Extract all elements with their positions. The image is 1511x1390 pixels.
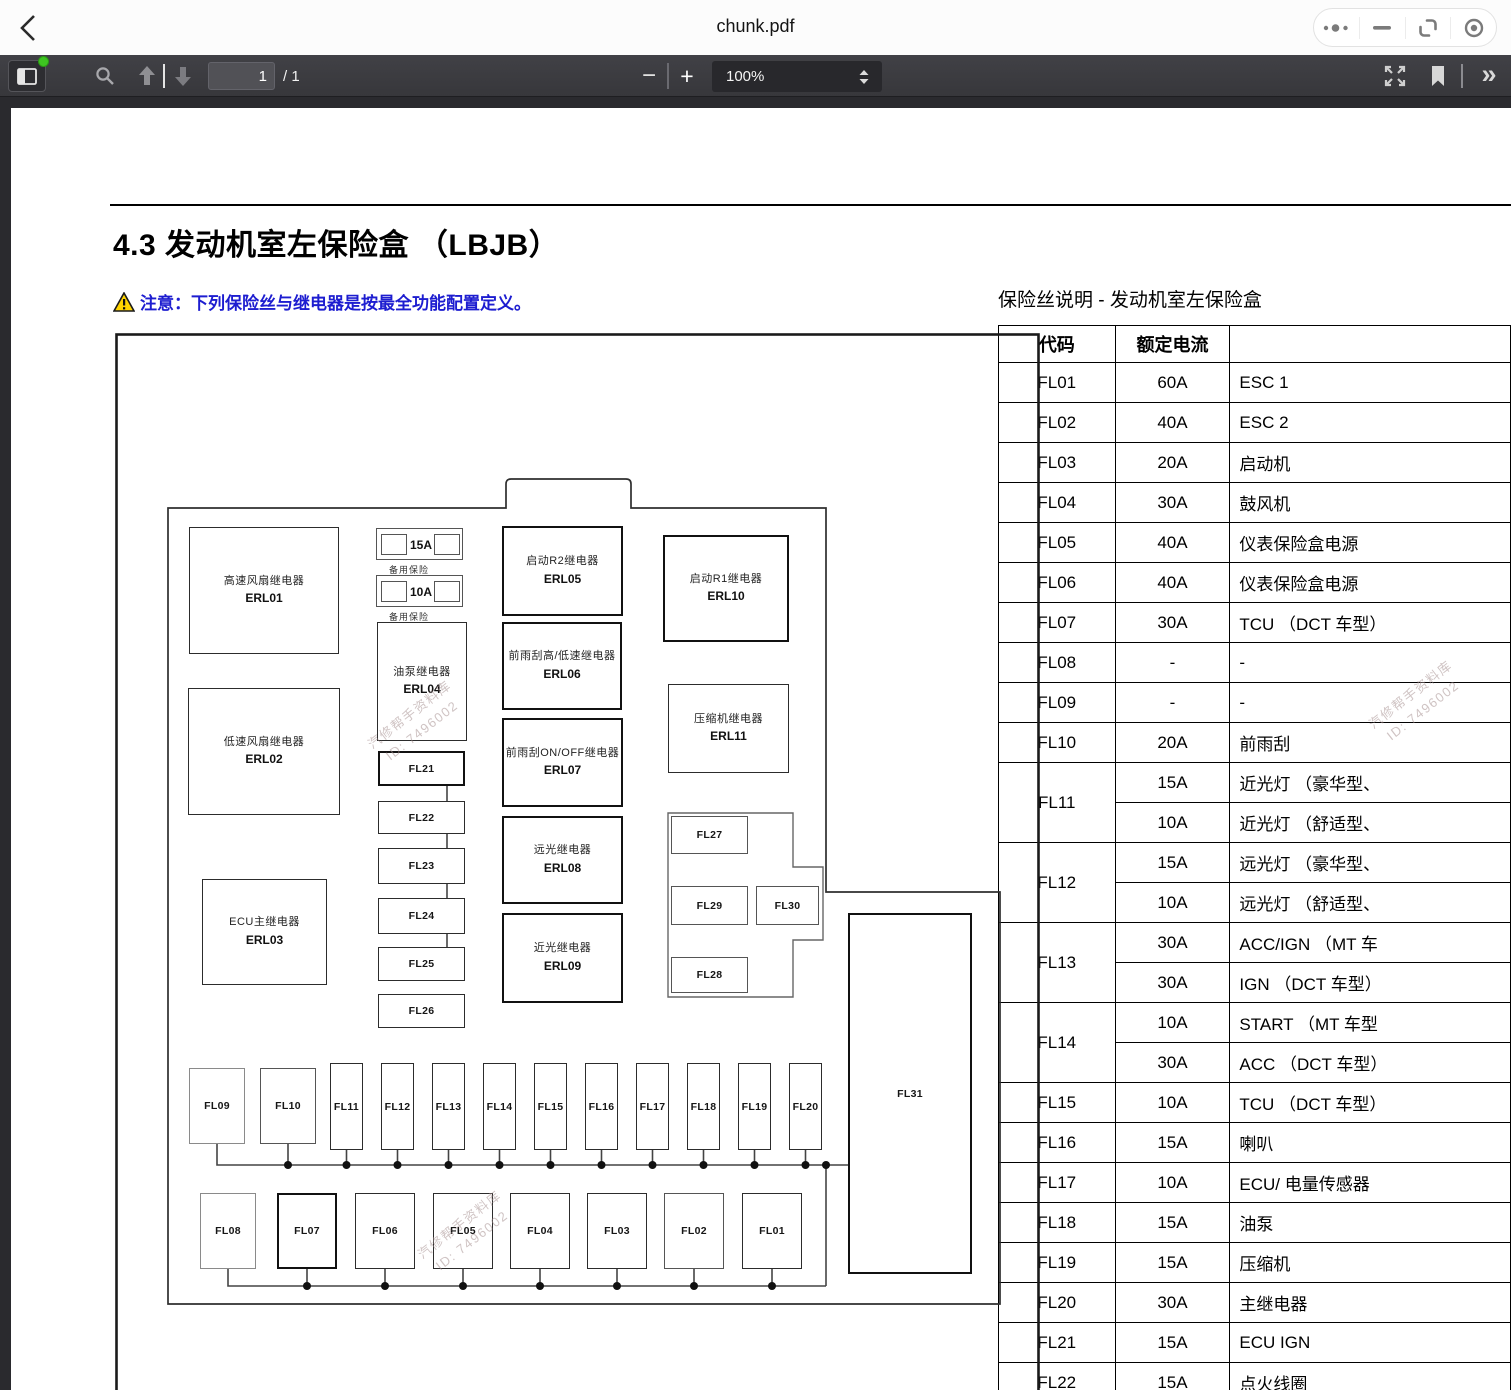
fuse-desc-cell: ACC/IGN （MT 车: [1230, 923, 1511, 963]
app-bar: chunk.pdf: [0, 0, 1511, 55]
fuse-desc-cell: 近光灯 （豪华型、: [1230, 763, 1511, 803]
relay-box-erl07: 前雨刮ON/OFF继电器ERL07: [502, 718, 623, 807]
fuse-amp-cell: 15A: [1115, 843, 1230, 883]
relay-name-label: 高速风扇继电器: [224, 574, 305, 590]
fuse-box-fl18: FL18: [687, 1063, 720, 1150]
header-desc: [1230, 326, 1511, 363]
fuse-box-fl08: FL08: [200, 1193, 256, 1269]
spare-caption: 备用保险: [389, 610, 429, 623]
fuse-amp-cell: 30A: [1115, 1043, 1230, 1083]
fuse-desc-cell: 仪表保险盒电源: [1230, 563, 1511, 603]
fuse-amp-cell: 15A: [1115, 1323, 1230, 1363]
fuse-label: FL07: [294, 1225, 320, 1237]
next-page-button[interactable]: [170, 63, 196, 89]
fuse-desc-cell: TCU （DCT 车型）: [1230, 603, 1511, 643]
fuse-desc-cell: IGN （DCT 车型）: [1230, 963, 1511, 1003]
toolbar-separator: [1461, 64, 1463, 88]
fuse-box-fl12: FL12: [381, 1063, 414, 1150]
fuse-desc-cell: ESC 1: [1230, 363, 1511, 403]
fuse-label: FL09: [204, 1100, 230, 1112]
fuse-amp-cell: 10A: [1115, 1003, 1230, 1043]
fuse-amp-cell: 10A: [1115, 883, 1230, 923]
fuse-box-fl07: FL07: [277, 1193, 337, 1269]
fuse-box-fl26: FL26: [378, 994, 465, 1028]
relay-name-label: 前雨刮高/低速继电器: [508, 649, 615, 665]
fuse-label: FL03: [604, 1225, 630, 1237]
relay-box-erl10: 启动R1继电器ERL10: [663, 535, 789, 642]
pdf-page: 4.3 发动机室左保险盒 （LBJB） 注意：下列保险丝与继电器是按最全功能配置…: [11, 108, 1511, 1390]
fuse-box-fl05: FL05: [433, 1193, 493, 1269]
zoom-select[interactable]: 100%: [712, 61, 882, 92]
notification-dot: [38, 56, 49, 67]
fuse-label: FL24: [409, 910, 435, 922]
spare-fuse-block: 10A: [376, 575, 463, 607]
relay-name-label: 低速风扇继电器: [224, 735, 305, 751]
fuse-desc-cell: ESC 2: [1230, 403, 1511, 443]
fuse-label: FL13: [436, 1101, 462, 1113]
fuse-amp-cell: 30A: [1115, 603, 1230, 643]
spare-fuse-slot: [381, 534, 407, 555]
fuse-table-row: FL2030A主继电器: [999, 1283, 1511, 1323]
fuse-box-fl16: FL16: [585, 1063, 618, 1150]
caution-text: 注意：下列保险丝与继电器是按最全功能配置定义。: [140, 289, 531, 314]
fuse-desc-cell: 远光灯 （豪华型、: [1230, 843, 1511, 883]
fuse-table-row: FL1615A喇叭: [999, 1123, 1511, 1163]
fuse-box-fl21: FL21: [378, 751, 465, 786]
more-button[interactable]: [1314, 9, 1359, 46]
fuse-box-fl03: FL03: [587, 1193, 647, 1269]
relay-code-label: ERL02: [245, 750, 282, 768]
toolbar-overflow-button[interactable]: »: [1474, 57, 1504, 91]
fuse-box-fl30: FL30: [756, 886, 819, 925]
fuse-desc-cell: 压缩机: [1230, 1243, 1511, 1283]
record-icon: [1463, 17, 1485, 39]
fuse-table-row: FL0640A仪表保险盒电源: [999, 563, 1511, 603]
fuse-label: FL29: [697, 900, 723, 912]
fuse-label: FL12: [385, 1101, 411, 1113]
fuse-box-fl31: FL31: [848, 913, 972, 1274]
fuse-amp-cell: 30A: [1115, 483, 1230, 523]
fuse-amp-cell: 40A: [1115, 523, 1230, 563]
fuse-label: FL06: [372, 1225, 398, 1237]
fuse-amp-cell: 40A: [1115, 403, 1230, 443]
relay-box-erl03: ECU主继电器ERL03: [202, 879, 327, 985]
fuse-box-fl02: FL02: [664, 1193, 724, 1269]
fuse-box-fl09: FL09: [189, 1068, 245, 1144]
find-button[interactable]: [90, 63, 120, 89]
relay-box-erl04: 油泵继电器ERL04: [377, 622, 467, 741]
fuse-label: FL14: [487, 1101, 513, 1113]
fuse-label: FL25: [409, 958, 435, 970]
fuse-label: FL23: [409, 860, 435, 872]
fuse-label: FL30: [775, 900, 801, 912]
fuse-amp-cell: 15A: [1115, 1203, 1230, 1243]
fullscreen-expand-icon: [1382, 63, 1408, 89]
fuse-table-row: FL2215A点火线圈: [999, 1363, 1511, 1390]
fuse-table: 代码 额定电流 FL0160AESC 1FL0240AESC 2FL0320A启…: [998, 325, 1511, 1390]
fuse-desc-cell: TCU （DCT 车型）: [1230, 1083, 1511, 1123]
fuse-amp-cell: 30A: [1115, 923, 1230, 963]
fuse-amp-cell: -: [1115, 683, 1230, 723]
fuse-table-row: FL2115AECU IGN: [999, 1323, 1511, 1363]
fuse-label: FL02: [681, 1225, 707, 1237]
fuse-table-row: FL0430A鼓风机: [999, 483, 1511, 523]
relay-box-erl11: 压缩机继电器ERL11: [668, 684, 789, 773]
fuse-desc-cell: 主继电器: [1230, 1283, 1511, 1323]
fuse-amp-cell: 10A: [1115, 1083, 1230, 1123]
relay-code-label: ERL06: [543, 665, 580, 683]
fuse-amp-cell: 20A: [1115, 443, 1230, 483]
select-spinner-icon: [852, 68, 876, 86]
relay-name-label: 启动R2继电器: [526, 554, 599, 570]
fuse-box-fl20: FL20: [789, 1063, 822, 1150]
fuse-label: FL20: [793, 1101, 819, 1113]
fuse-desc-cell: 远光灯 （舒适型、: [1230, 883, 1511, 923]
fuse-box-fl10: FL10: [260, 1068, 316, 1144]
relay-code-label: ERL08: [544, 859, 581, 877]
fuse-table-row: FL1710AECU/ 电量传感器: [999, 1163, 1511, 1203]
fuse-desc-cell: 点火线圈: [1230, 1363, 1511, 1390]
relay-name-label: 前雨刮ON/OFF继电器: [506, 746, 620, 762]
fuse-box-fl22: FL22: [378, 801, 465, 834]
fuse-desc-cell: ECU IGN: [1230, 1323, 1511, 1363]
relay-code-label: ERL10: [707, 587, 744, 605]
relay-box-erl08: 远光继电器ERL08: [502, 816, 623, 904]
fuse-label: FL11: [334, 1101, 359, 1113]
fuse-amp-cell: 15A: [1115, 763, 1230, 803]
fuse-box-fl24: FL24: [378, 898, 465, 934]
fuse-label: FL18: [691, 1101, 717, 1113]
fuse-table-row: FL0320A启动机: [999, 443, 1511, 483]
fuse-box-fl17: FL17: [636, 1063, 669, 1150]
caution-note: 注意：下列保险丝与继电器是按最全功能配置定义。: [113, 289, 531, 314]
fuse-amp-cell: 10A: [1115, 803, 1230, 843]
relay-name-label: 油泵继电器: [393, 665, 451, 681]
relay-box-erl06: 前雨刮高/低速继电器ERL06: [502, 622, 622, 710]
fuse-amp-cell: 60A: [1115, 363, 1230, 403]
fuse-table-row: FL0240AESC 2: [999, 403, 1511, 443]
section-divider: [110, 204, 1511, 206]
fuse-desc-cell: -: [1230, 683, 1511, 723]
search-icon: [94, 65, 116, 87]
fuse-box-fl13: FL13: [432, 1063, 465, 1150]
page-number-input[interactable]: [208, 62, 275, 90]
relay-code-label: ERL05: [544, 570, 581, 588]
toolbar-separator: [163, 64, 165, 88]
spare-amp-label: 15A: [410, 538, 432, 552]
presentation-mode-button[interactable]: [1381, 63, 1409, 89]
fuse-amp-cell: 30A: [1115, 963, 1230, 1003]
fuse-desc-cell: ACC （DCT 车型）: [1230, 1043, 1511, 1083]
relay-box-erl01: 高速风扇继电器ERL01: [189, 527, 339, 654]
fuse-table-header-row: 代码 额定电流: [999, 326, 1511, 363]
fuse-amp-cell: 30A: [1115, 1283, 1230, 1323]
relay-name-label: 近光继电器: [534, 941, 592, 957]
fuse-table-row: FL09--: [999, 683, 1511, 723]
fuse-label: FL16: [589, 1101, 615, 1113]
header-amp: 额定电流: [1115, 326, 1230, 363]
relay-code-label: ERL07: [544, 761, 581, 779]
fuse-table-row: FL1815A油泵: [999, 1203, 1511, 1243]
fuse-label: FL22: [409, 812, 435, 824]
fuse-box-fl28: FL28: [671, 957, 748, 993]
fuse-box-fl01: FL01: [742, 1193, 802, 1269]
spare-fuse-slot: [434, 581, 460, 602]
section-heading: 4.3 发动机室左保险盒 （LBJB）: [113, 220, 559, 264]
fuse-desc-cell: START （MT 车型: [1230, 1003, 1511, 1043]
current-view-button[interactable]: [1426, 62, 1450, 90]
minimize-icon: [1372, 25, 1392, 31]
relay-code-label: ERL04: [403, 680, 440, 698]
fuse-label: FL01: [759, 1225, 785, 1237]
fuse-desc-cell: 启动机: [1230, 443, 1511, 483]
pdf-viewer-background: 4.3 发动机室左保险盒 （LBJB） 注意：下列保险丝与继电器是按最全功能配置…: [0, 97, 1511, 1390]
fuse-amp-cell: 15A: [1115, 1243, 1230, 1283]
window-title: chunk.pdf: [0, 16, 1511, 37]
fuse-amp-cell: -: [1115, 643, 1230, 683]
spare-fuse-slot: [381, 581, 407, 602]
fuse-table-row: FL1410ASTART （MT 车型: [999, 1003, 1511, 1043]
fuse-label: FL08: [215, 1225, 241, 1237]
spare-amp-label: 10A: [410, 585, 432, 599]
fuse-label: FL26: [409, 1005, 435, 1017]
fuse-table-row: FL0160AESC 1: [999, 363, 1511, 403]
fuse-box-fl25: FL25: [378, 947, 465, 981]
fuse-amp-cell: 15A: [1115, 1363, 1230, 1390]
relay-box-erl02: 低速风扇继电器ERL02: [188, 688, 340, 815]
fuse-table-row: FL1915A压缩机: [999, 1243, 1511, 1283]
fuse-label: FL21: [409, 763, 435, 775]
fuse-amp-cell: 15A: [1115, 1123, 1230, 1163]
pdf-toolbar: / 1 − + 100% »: [0, 55, 1511, 97]
relay-name-label: ECU主继电器: [229, 915, 300, 931]
fuse-box-fl04: FL04: [510, 1193, 570, 1269]
fuse-desc-cell: 鼓风机: [1230, 483, 1511, 523]
fuse-box-fl29: FL29: [671, 886, 748, 925]
sidebar-icon: [16, 67, 38, 86]
fuse-desc-cell: 喇叭: [1230, 1123, 1511, 1163]
fuse-table-row: FL1215A远光灯 （豪华型、: [999, 843, 1511, 883]
fuse-table-row: FL0540A仪表保险盒电源: [999, 523, 1511, 563]
minimize-button[interactable]: [1360, 9, 1405, 46]
fuse-box-fl19: FL19: [738, 1063, 771, 1150]
fuse-label: FL10: [275, 1100, 301, 1112]
relay-box-erl09: 近光继电器ERL09: [502, 913, 623, 1003]
fuse-desc-cell: 前雨刮: [1230, 723, 1511, 763]
page-count-label: / 1: [283, 68, 300, 85]
bookmark-icon: [1429, 64, 1447, 88]
fuse-desc-cell: 近光灯 （舒适型、: [1230, 803, 1511, 843]
fuse-table-row: FL08--: [999, 643, 1511, 683]
zoom-in-button[interactable]: +: [671, 61, 703, 91]
relay-name-label: 压缩机继电器: [694, 712, 763, 728]
fuse-table-row: FL1115A近光灯 （豪华型、: [999, 763, 1511, 803]
arrow-down-icon: [172, 64, 194, 88]
relay-name-label: 远光继电器: [534, 843, 592, 859]
fuse-label: FL04: [527, 1225, 553, 1237]
warning-icon: [113, 292, 135, 312]
fuse-amp-cell: 10A: [1115, 1163, 1230, 1203]
fuse-label: FL17: [640, 1101, 666, 1113]
fuse-desc-cell: 油泵: [1230, 1203, 1511, 1243]
fuse-label: FL05: [450, 1225, 476, 1237]
record-button[interactable]: [1451, 9, 1496, 46]
fuse-label: FL15: [538, 1101, 564, 1113]
toolbar-separator: [667, 63, 669, 89]
relay-code-label: ERL09: [544, 957, 581, 975]
fuse-box-fl14: FL14: [483, 1063, 516, 1150]
table-title: 保险丝说明 - 发动机室左保险盒: [998, 285, 1262, 312]
system-capsule: [1313, 8, 1497, 47]
zoom-out-button[interactable]: −: [633, 61, 665, 91]
spare-fuse-block: 15A: [376, 528, 463, 560]
fuse-amp-cell: 40A: [1115, 563, 1230, 603]
sidebar-toggle-button[interactable]: [8, 60, 46, 92]
relay-box-erl05: 启动R2继电器ERL05: [502, 526, 623, 616]
fuse-box-fl06: FL06: [355, 1193, 415, 1269]
fuse-table-row: FL1020A前雨刮: [999, 723, 1511, 763]
arrow-up-icon: [136, 64, 158, 88]
fuse-label: FL28: [697, 969, 723, 981]
previous-page-button[interactable]: [134, 63, 160, 89]
zoom-value-label: 100%: [712, 68, 852, 85]
multiwindow-button[interactable]: [1406, 9, 1451, 46]
fuse-label: FL31: [897, 1088, 923, 1100]
relay-code-label: ERL11: [710, 727, 747, 745]
multiwindow-icon: [1417, 17, 1439, 39]
fusebox-diagram: 高速风扇继电器ERL01低速风扇继电器ERL02ECU主继电器ERL03油泵继电…: [115, 333, 1040, 1390]
fuse-label: FL27: [697, 829, 723, 841]
spare-fuse-slot: [434, 534, 460, 555]
fuse-box-fl11: FL11: [330, 1063, 363, 1150]
fuse-desc-cell: -: [1230, 643, 1511, 683]
fuse-box-fl27: FL27: [671, 816, 748, 854]
fuse-table-row: FL1510ATCU （DCT 车型）: [999, 1083, 1511, 1123]
fuse-box-fl15: FL15: [534, 1063, 567, 1150]
fuse-box-fl23: FL23: [378, 848, 465, 884]
relay-name-label: 启动R1继电器: [690, 572, 763, 588]
fuse-amp-cell: 20A: [1115, 723, 1230, 763]
fuse-desc-cell: ECU/ 电量传感器: [1230, 1163, 1511, 1203]
fuse-table-row: FL1330AACC/IGN （MT 车: [999, 923, 1511, 963]
relay-code-label: ERL01: [245, 589, 282, 607]
relay-code-label: ERL03: [246, 931, 283, 949]
more-dots-icon: [1322, 23, 1350, 33]
fuse-table-row: FL0730ATCU （DCT 车型）: [999, 603, 1511, 643]
fuse-desc-cell: 仪表保险盒电源: [1230, 523, 1511, 563]
fuse-label: FL19: [742, 1101, 768, 1113]
